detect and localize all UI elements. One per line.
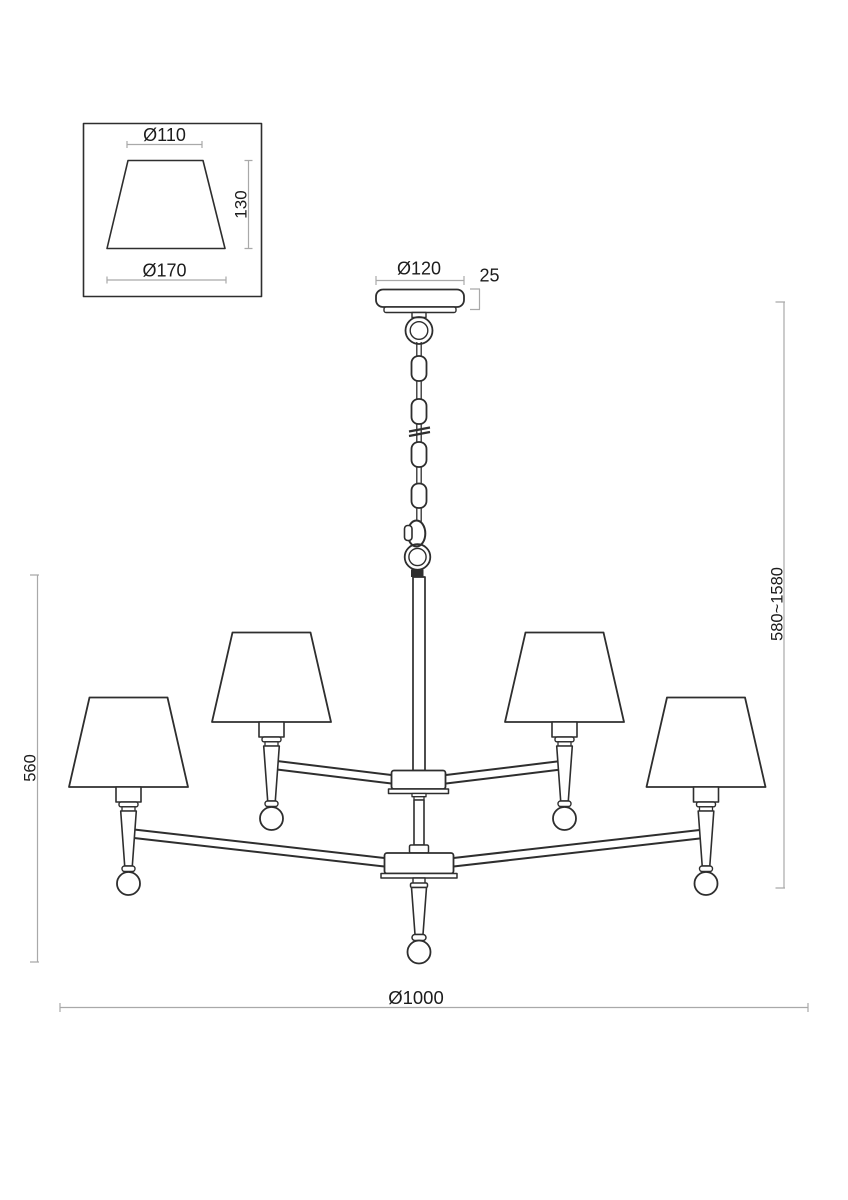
lamp-inner-left (212, 633, 331, 831)
canopy-body (376, 290, 464, 308)
detail-view: Ø110 130 Ø170 (84, 124, 262, 297)
lower-hub (385, 853, 454, 874)
dim-overall-diameter: Ø1000 (60, 987, 808, 1012)
dim-label-overall-diameter: Ø1000 (388, 987, 444, 1008)
arm-lower-left (134, 830, 385, 867)
hook-assembly (405, 521, 431, 578)
chain-connector (417, 508, 421, 522)
lamp-outer-right (647, 698, 766, 896)
knurled-coupler (411, 570, 424, 578)
suspension-chain (409, 342, 430, 522)
chandelier-technical-drawing: Ø110 130 Ø170 Ø120 25 580~1580 560 (0, 0, 848, 1200)
chain-connector (417, 381, 421, 400)
ceiling-canopy (376, 290, 464, 345)
dim-fixture-height: 560 (22, 575, 40, 962)
dim-canopy-diameter: Ø120 (376, 259, 464, 286)
rod-sleeve (410, 845, 429, 853)
arm-upper-right (446, 761, 561, 784)
chain-link (412, 399, 427, 424)
upper-hub (392, 771, 446, 790)
dim-line (470, 289, 480, 310)
canopy-ring-inner (410, 322, 428, 340)
chain-link (412, 442, 427, 467)
hanging-ring-inner (409, 548, 426, 565)
finial-stem (412, 888, 427, 935)
lamp-outer-left (69, 698, 188, 896)
dim-label-shade-height: 130 (232, 190, 251, 218)
chain-link (412, 356, 427, 381)
chain-break-mark-icon (409, 428, 430, 437)
finial-disc (412, 935, 426, 941)
dim-shade-top-diameter: Ø110 (127, 125, 202, 148)
quick-link-gate (405, 526, 413, 541)
dim-shade-height: 130 (232, 161, 253, 249)
dim-shade-bottom-diameter: Ø170 (107, 261, 226, 284)
canopy-lip (384, 307, 456, 313)
dim-label-fixture-height: 560 (22, 754, 40, 782)
chain-connector (417, 467, 421, 484)
dim-suspension-range: 580~1580 (769, 302, 787, 888)
dim-label-canopy-diameter: Ø120 (397, 259, 441, 279)
upper-hub-flange (389, 789, 449, 794)
dim-canopy-height: 25 (470, 266, 500, 310)
arm-upper-left (277, 761, 392, 784)
dim-label-shade-top-diameter: Ø110 (143, 125, 186, 145)
dim-label-suspension-range: 580~1580 (769, 567, 787, 641)
lamp-inner-right (505, 633, 624, 831)
dim-label-canopy-height: 25 (479, 266, 499, 286)
center-rod (413, 577, 425, 771)
center-rod-mid (414, 800, 424, 845)
center-column (381, 771, 457, 964)
shade-detail-outline (107, 161, 225, 249)
dim-label-shade-bottom-diameter: Ø170 (142, 261, 186, 281)
arm-lower-right (454, 830, 705, 867)
chain-link (412, 484, 427, 509)
center-ball-finial (408, 941, 431, 964)
